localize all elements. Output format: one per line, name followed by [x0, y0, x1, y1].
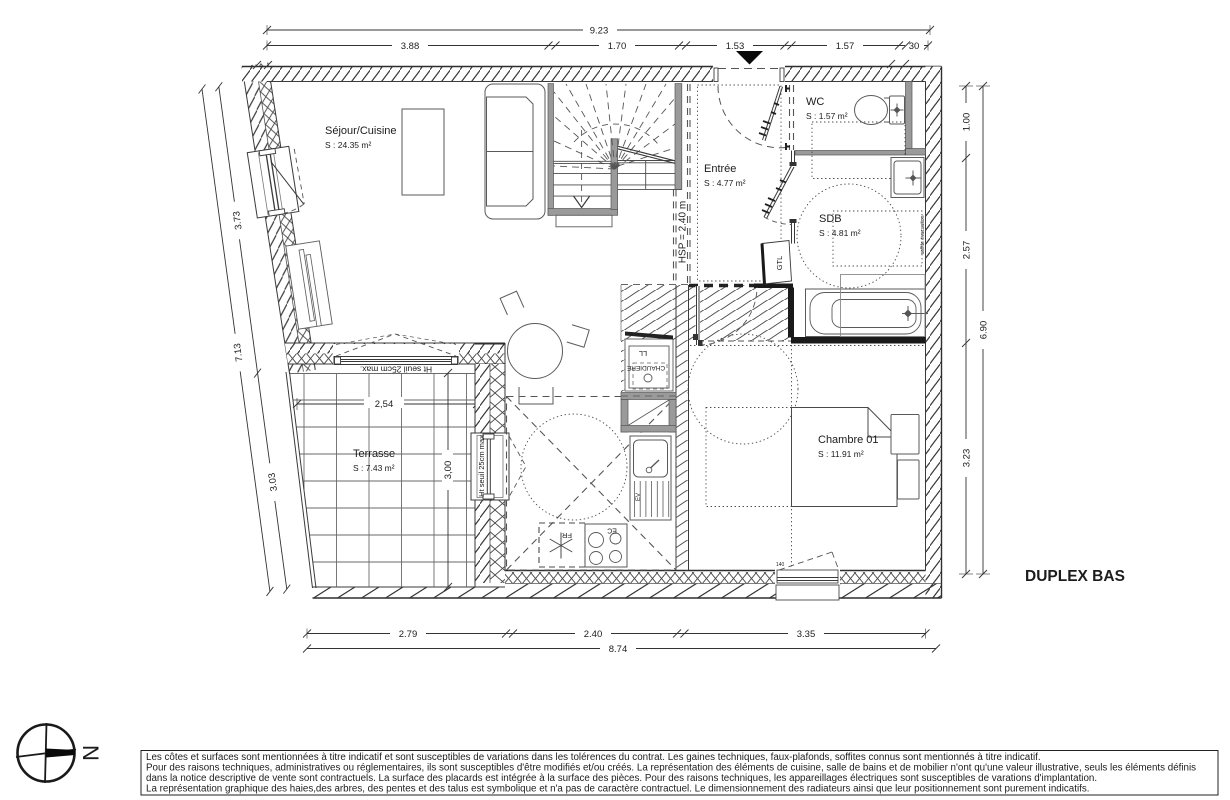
svg-text:Pour des raisons techniques, a: Pour des raisons techniques, administrat… — [146, 763, 1196, 774]
svg-text:1.57: 1.57 — [836, 41, 855, 52]
svg-text:S : 24.35 m²: S : 24.35 m² — [325, 140, 371, 150]
svg-text:2,54: 2,54 — [375, 399, 394, 410]
svg-text:30: 30 — [909, 41, 920, 52]
svg-text:3.88: 3.88 — [401, 41, 420, 52]
svg-text:Ht seuil 25cm max: Ht seuil 25cm max — [477, 435, 486, 497]
svg-text:9.23: 9.23 — [590, 26, 609, 37]
svg-text:Terrasse: Terrasse — [353, 448, 395, 460]
svg-text:3,00: 3,00 — [443, 461, 454, 480]
svg-text:3.35: 3.35 — [797, 629, 816, 640]
svg-text:EV: EV — [636, 493, 642, 501]
svg-text:Entrée: Entrée — [704, 163, 736, 175]
svg-text:3.23: 3.23 — [962, 449, 973, 468]
svg-text:S : 1.57 m²: S : 1.57 m² — [806, 111, 848, 121]
svg-text:S : 7.43 m²: S : 7.43 m² — [353, 463, 395, 473]
svg-text:N: N — [78, 745, 103, 761]
svg-text:2.57: 2.57 — [962, 241, 973, 260]
svg-text:S : 11.91 m²: S : 11.91 m² — [818, 449, 864, 459]
svg-text:S : 4.77 m²: S : 4.77 m² — [704, 178, 746, 188]
svg-text:Chambre 01: Chambre 01 — [818, 434, 879, 446]
svg-text:DUPLEX BAS: DUPLEX BAS — [1025, 568, 1125, 585]
svg-text:dans la notice descriptive de: dans la notice descriptive de vente sont… — [146, 773, 1097, 784]
svg-text:Séjour/Cuisine: Séjour/Cuisine — [325, 125, 397, 137]
svg-text:8.74: 8.74 — [609, 644, 628, 655]
svg-text:1.53: 1.53 — [726, 41, 745, 52]
svg-text:SDB: SDB — [819, 213, 842, 225]
svg-text:1.70: 1.70 — [608, 41, 627, 52]
svg-text:EC: EC — [607, 527, 617, 534]
svg-text:6.90: 6.90 — [979, 321, 990, 340]
svg-text:Les côtes et surfaces sont men: Les côtes et surfaces sont mentionnées à… — [146, 752, 1041, 763]
svg-text:GTL: GTL — [775, 256, 784, 271]
svg-text:soffite évacuation: soffite évacuation — [920, 215, 926, 254]
svg-text:140: 140 — [776, 562, 785, 568]
svg-text:2.79: 2.79 — [399, 629, 418, 640]
svg-text:Ht seuil 25cm max.: Ht seuil 25cm max. — [360, 365, 432, 375]
svg-text:S : 4.81 m²: S : 4.81 m² — [819, 228, 861, 238]
svg-text:FR: FR — [561, 531, 572, 540]
svg-text:La représentation graphique d: La représentation graphique des haies,de… — [146, 784, 1089, 795]
svg-text:HSP = 2.40 m: HSP = 2.40 m — [678, 201, 689, 263]
svg-text:CHAUDIERE: CHAUDIERE — [626, 364, 665, 371]
svg-text:LL: LL — [639, 349, 647, 358]
svg-text:1.00: 1.00 — [962, 113, 973, 132]
svg-text:WC: WC — [806, 96, 824, 108]
svg-text:2.40: 2.40 — [584, 629, 603, 640]
